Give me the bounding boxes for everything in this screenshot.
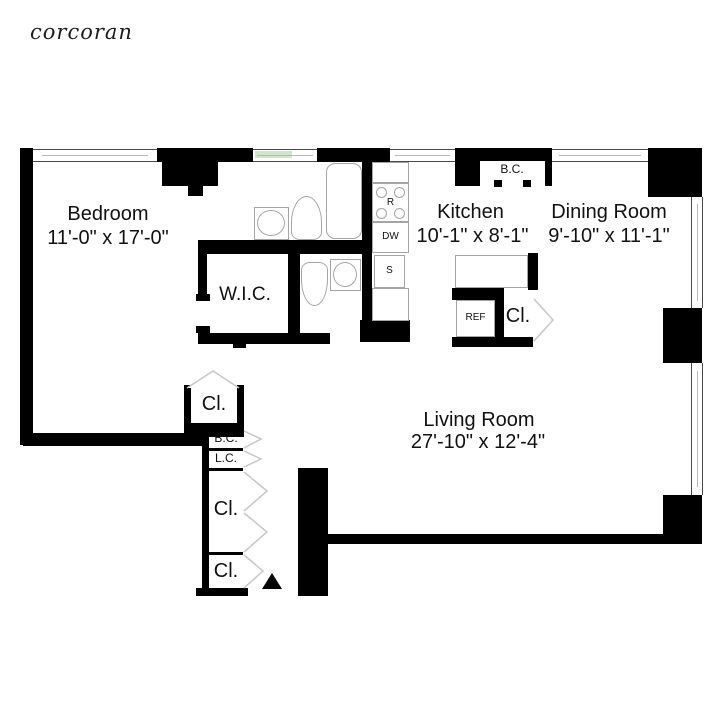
closet-hall-large-label: Cl. xyxy=(207,498,245,520)
door-swing-icon xyxy=(533,298,555,342)
sink-basin-icon xyxy=(333,262,357,287)
wall-wic-bottom xyxy=(198,333,330,344)
window-bathroom-tint xyxy=(255,151,292,158)
kitchen-name: Kitchen xyxy=(413,201,528,223)
burner-icon xyxy=(394,208,405,219)
kitchen-peninsula-counter xyxy=(455,255,528,288)
broom-closet-hall-label: B.C. xyxy=(209,432,243,445)
window-bathroom xyxy=(253,149,317,162)
floor-plan: corcoran B.C. xyxy=(0,0,720,720)
wall-wic-right xyxy=(288,254,300,343)
window-kitchen xyxy=(390,149,455,162)
bedroom-name: Bedroom xyxy=(38,203,178,225)
window-living-right xyxy=(691,363,703,495)
living-room-dimensions: 27'-10" x 12'-4" xyxy=(403,431,553,453)
walk-in-closet-label: W.I.C. xyxy=(203,285,287,306)
dining-room-name: Dining Room xyxy=(543,201,675,223)
wall-top-right-corner xyxy=(648,148,702,197)
kitchen-sink-label: S xyxy=(374,265,405,276)
bedroom-dimensions: 11'-0" x 17'-0" xyxy=(28,227,188,249)
toilet-2 xyxy=(301,262,328,306)
linen-closet-hall-label: L.C. xyxy=(209,452,243,465)
door-tick xyxy=(494,180,502,187)
wall-living-bottom xyxy=(318,534,702,544)
wall-bedroom-door-tab xyxy=(188,185,203,196)
closet-hall-entry-label: Cl. xyxy=(207,560,245,582)
door-tick xyxy=(523,180,531,187)
wall-kitchen-cap xyxy=(360,320,410,342)
wall-counter-right xyxy=(528,253,538,290)
door-swing-icon xyxy=(243,471,269,512)
window-dining-right xyxy=(691,197,703,308)
entrance-arrow-icon xyxy=(262,573,282,589)
toilet xyxy=(291,196,322,240)
closet-bedroom-label: Cl. xyxy=(190,393,238,415)
wall-bath-kitchen xyxy=(362,162,372,342)
wall-bathroom-bottom xyxy=(198,240,372,254)
range-label: R xyxy=(372,197,409,208)
wall-foyer xyxy=(298,468,328,596)
wall-divider-bottom xyxy=(452,337,533,347)
bathroom-sink xyxy=(254,207,289,240)
bathroom-sink-2 xyxy=(330,259,361,291)
door-tick xyxy=(233,341,246,348)
kitchen-counter-bottom xyxy=(372,288,409,321)
living-room-name: Living Room xyxy=(418,409,540,431)
door-swing-icon xyxy=(186,369,240,389)
sink-basin-icon xyxy=(257,210,285,236)
wall-right-column xyxy=(663,308,702,363)
wall-top-pier-1 xyxy=(157,148,253,162)
closet-divider xyxy=(209,468,243,471)
door-swing-icon xyxy=(243,430,263,449)
door-swing-icon xyxy=(243,512,269,553)
burner-icon xyxy=(376,208,387,219)
window-bedroom xyxy=(33,149,157,162)
kitchen-counter-top xyxy=(372,162,409,183)
wall-top-pier-2 xyxy=(317,148,390,162)
window-dining xyxy=(552,149,648,162)
closet-dining-label: Cl. xyxy=(502,305,534,327)
wall-closet-stack-bottom xyxy=(196,588,248,596)
dishwasher-label: DW xyxy=(372,231,409,242)
wall-bedroom-bottom xyxy=(23,433,209,446)
broom-closet-kitchen-label: B.C. xyxy=(482,163,542,176)
refrigerator-label: REF xyxy=(456,312,495,323)
door-swing-icon xyxy=(243,450,263,468)
corcoran-logo: corcoran xyxy=(30,20,133,44)
wall-bedroom-bath-chunk xyxy=(162,162,218,186)
bathtub xyxy=(326,163,362,239)
kitchen-dimensions: 10'-1" x 8'-1" xyxy=(405,225,540,247)
wall-top-left-corner xyxy=(20,148,33,193)
closet-divider xyxy=(209,552,243,555)
dining-room-dimensions: 9'-10" x 11'-1" xyxy=(540,225,678,247)
